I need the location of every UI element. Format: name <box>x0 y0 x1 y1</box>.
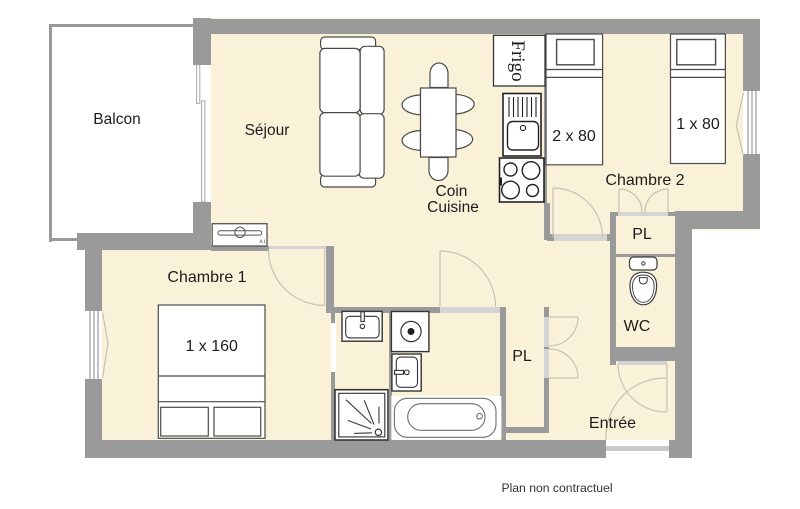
svg-text:A1: A1 <box>259 239 266 245</box>
